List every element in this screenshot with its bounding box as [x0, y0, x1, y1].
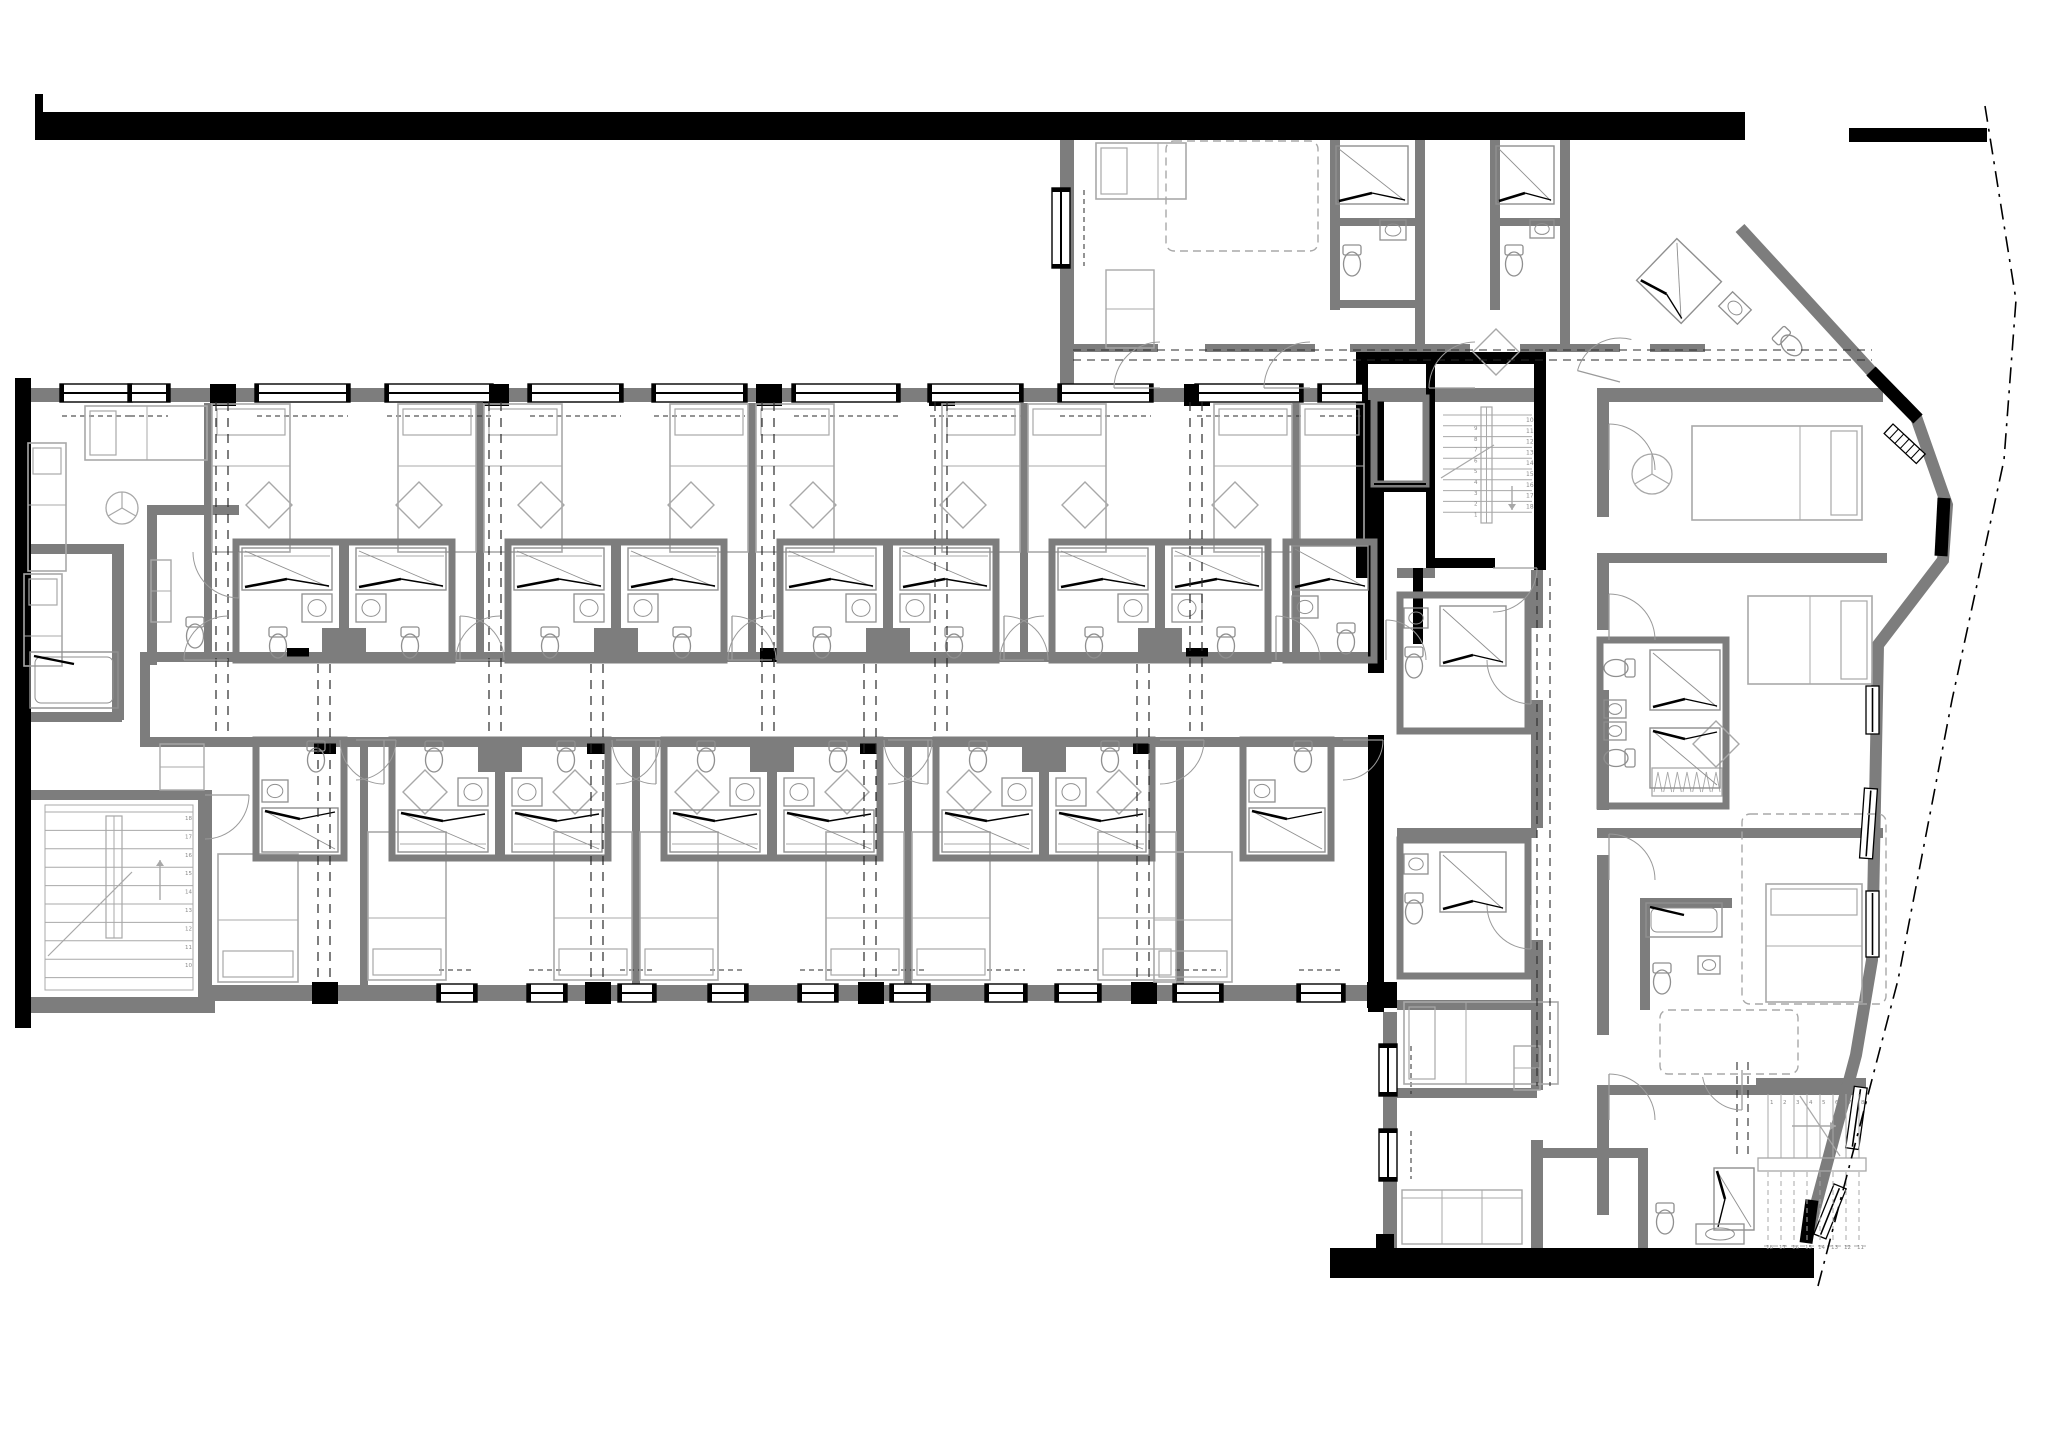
- window: [1052, 188, 1084, 268]
- svg-text:10: 10: [1526, 417, 1534, 424]
- bed: [1154, 852, 1232, 982]
- shower: [784, 810, 874, 852]
- bathtub: [30, 652, 118, 708]
- door-arc: [193, 552, 239, 598]
- svg-text:3: 3: [1474, 491, 1478, 497]
- floor-plan-page: 1011121314151617189876543211817161514131…: [0, 0, 2053, 1453]
- bed: [670, 404, 748, 552]
- svg-text:15: 15: [1526, 471, 1534, 478]
- facade-window: [1866, 891, 1879, 957]
- svg-text:14: 14: [1818, 1245, 1825, 1251]
- svg-text:3: 3: [1796, 1100, 1800, 1106]
- sink: [1172, 594, 1202, 622]
- closet-hangers: [1652, 768, 1722, 796]
- svg-text:17: 17: [1779, 1245, 1786, 1251]
- door-arc: [1609, 834, 1655, 880]
- window: [985, 970, 1027, 1002]
- sink: [302, 594, 332, 622]
- bathtub: [1646, 903, 1722, 937]
- bed: [756, 404, 834, 552]
- svg-text:7: 7: [1848, 1100, 1852, 1106]
- svg-text:13: 13: [185, 908, 192, 914]
- bed: [1748, 596, 1872, 684]
- window: [792, 384, 900, 416]
- bed: [1766, 884, 1862, 1002]
- bathroom-pod: [256, 740, 344, 858]
- chair-diamond: [518, 482, 564, 528]
- shower: [1440, 606, 1506, 666]
- shower: [1249, 808, 1325, 852]
- svg-text:15: 15: [1805, 1245, 1812, 1251]
- svg-text:1: 1: [1474, 512, 1478, 518]
- toilet: [186, 617, 204, 648]
- bed: [398, 404, 476, 552]
- bed: [942, 404, 1020, 552]
- toilet: [1405, 893, 1423, 924]
- shower: [1440, 852, 1506, 912]
- toilet: [1772, 326, 1807, 360]
- bed: [554, 832, 632, 980]
- toilet: [1337, 623, 1355, 654]
- svg-text:18: 18: [1526, 503, 1534, 510]
- shower: [786, 548, 876, 590]
- sink: [628, 594, 658, 622]
- sink: [512, 778, 542, 806]
- bed: [912, 832, 990, 980]
- chair-diamond: [1097, 770, 1141, 814]
- svg-text:17: 17: [185, 834, 192, 840]
- svg-text:11: 11: [185, 945, 192, 951]
- window: [255, 384, 350, 416]
- svg-text:5: 5: [1822, 1100, 1826, 1106]
- svg-text:18: 18: [185, 816, 192, 822]
- bed: [218, 854, 298, 982]
- sink: [846, 594, 876, 622]
- toilet: [1604, 659, 1635, 677]
- bathroom-pod: [1243, 740, 1331, 858]
- bed: [1096, 143, 1186, 199]
- bed: [1692, 426, 1862, 520]
- svg-text:8: 8: [1474, 437, 1478, 443]
- toilet: [1343, 245, 1361, 276]
- chair-diamond: [403, 770, 447, 814]
- wardrobe: [160, 744, 204, 790]
- windows-layer: [60, 188, 1925, 1239]
- walls-layer: [15, 94, 1987, 1278]
- door-arc: [1609, 1074, 1655, 1120]
- toilet: [1653, 963, 1671, 994]
- bathroom-pod-pair: [664, 740, 880, 858]
- shower: [1056, 810, 1146, 852]
- shower: [942, 810, 1032, 852]
- round-table: [106, 492, 138, 524]
- svg-text:17: 17: [1526, 493, 1534, 500]
- bathroom-pod-pair: [780, 542, 996, 660]
- sink: [262, 780, 288, 802]
- sink: [1118, 594, 1148, 622]
- chair-diamond: [668, 482, 714, 528]
- window: [1055, 970, 1101, 1002]
- shower: [628, 548, 718, 590]
- chair-diamond: [675, 770, 719, 814]
- toilet: [1405, 647, 1423, 678]
- shower: [1714, 1168, 1754, 1230]
- bed: [1028, 404, 1106, 552]
- svg-text:5: 5: [1474, 469, 1478, 475]
- svg-text:14: 14: [185, 890, 192, 896]
- window: [652, 384, 747, 416]
- shower: [356, 548, 446, 590]
- facade-window: [1866, 686, 1879, 734]
- chair-diamond: [1212, 482, 1258, 528]
- chair-diamond: [947, 770, 991, 814]
- shower: [900, 548, 990, 590]
- svg-text:9: 9: [1474, 426, 1478, 432]
- svg-text:18: 18: [1766, 1245, 1773, 1251]
- bed: [1214, 404, 1292, 552]
- svg-text:15: 15: [185, 871, 192, 877]
- svg-text:16: 16: [1526, 482, 1534, 489]
- shower: [512, 810, 602, 852]
- bed-dashed: [1166, 141, 1318, 251]
- sink: [1696, 1224, 1744, 1244]
- svg-text:1: 1: [1770, 1100, 1774, 1106]
- svg-text:11: 11: [1526, 428, 1534, 435]
- sink: [1249, 780, 1275, 802]
- sink: [1056, 778, 1086, 806]
- shower: [242, 548, 332, 590]
- svg-text:2: 2: [1783, 1100, 1787, 1106]
- chair-diamond: [790, 482, 836, 528]
- svg-text:6: 6: [1835, 1100, 1839, 1106]
- svg-text:4: 4: [1474, 480, 1478, 486]
- svg-text:16: 16: [1792, 1245, 1799, 1251]
- svg-text:13: 13: [1831, 1245, 1838, 1251]
- bathroom-pod-pair: [1052, 542, 1268, 660]
- svg-text:12: 12: [1844, 1245, 1851, 1251]
- dashed-lines-layer: [216, 106, 2016, 1286]
- door-arc: [1609, 424, 1655, 470]
- svg-text:12: 12: [185, 926, 192, 932]
- bed: [826, 832, 904, 980]
- sink: [784, 778, 814, 806]
- chair-diamond: [825, 770, 869, 814]
- svg-text:4: 4: [1809, 1100, 1813, 1106]
- door-arc: [1609, 594, 1655, 640]
- bed-dashed: [1660, 1010, 1798, 1074]
- shower: [670, 810, 760, 852]
- sink: [574, 594, 604, 622]
- chair-diamond: [246, 482, 292, 528]
- sink: [458, 778, 488, 806]
- toilet: [1505, 245, 1523, 276]
- stair-core: [1441, 407, 1532, 523]
- svg-text:10: 10: [185, 963, 192, 969]
- couch: [1402, 1190, 1522, 1244]
- sink: [1698, 956, 1720, 974]
- window: [437, 970, 477, 1002]
- svg-text:6: 6: [1474, 458, 1478, 464]
- shower: [1637, 239, 1722, 324]
- toilet: [1656, 1203, 1674, 1234]
- wardrobe: [1106, 270, 1154, 348]
- sink: [1002, 778, 1032, 806]
- bed: [484, 404, 562, 552]
- shower: [262, 808, 338, 852]
- chair-diamond: [1062, 482, 1108, 528]
- shower: [1336, 146, 1408, 204]
- svg-text:2: 2: [1474, 502, 1478, 508]
- window: [708, 970, 748, 1002]
- sink: [356, 594, 386, 622]
- round-table: [1632, 454, 1672, 494]
- bathroom-pod-pair: [392, 740, 608, 858]
- sink: [900, 594, 930, 622]
- bed: [640, 832, 718, 980]
- window: [1379, 1129, 1411, 1181]
- chair-diamond: [396, 482, 442, 528]
- bathroom-pod-pair: [508, 542, 724, 660]
- svg-text:14: 14: [1526, 460, 1534, 467]
- shower: [1650, 728, 1720, 788]
- bed: [212, 404, 290, 552]
- bathroom-pod-pair: [236, 542, 452, 660]
- shower: [514, 548, 604, 590]
- sink: [1404, 854, 1428, 874]
- stair-southwest: [45, 805, 193, 990]
- shower: [1058, 548, 1148, 590]
- bathroom-pod-pair: [936, 740, 1152, 858]
- shower: [398, 810, 488, 852]
- svg-text:16: 16: [185, 853, 192, 859]
- svg-text:7: 7: [1474, 448, 1478, 454]
- shower: [1172, 548, 1262, 590]
- sink: [1719, 292, 1752, 324]
- floor-plan-svg: 1011121314151617189876543211817161514131…: [0, 0, 2053, 1453]
- svg-text:13: 13: [1526, 449, 1534, 456]
- shower: [1650, 650, 1720, 710]
- svg-text:8: 8: [1861, 1100, 1865, 1106]
- bed: [368, 832, 446, 980]
- window: [128, 384, 170, 416]
- window: [1297, 970, 1345, 1002]
- bed: [85, 406, 207, 460]
- svg-text:12: 12: [1526, 439, 1534, 446]
- window: [528, 384, 623, 416]
- bed: [1300, 404, 1364, 544]
- shower: [1496, 146, 1554, 204]
- svg-text:11: 11: [1857, 1245, 1864, 1251]
- sink: [730, 778, 760, 806]
